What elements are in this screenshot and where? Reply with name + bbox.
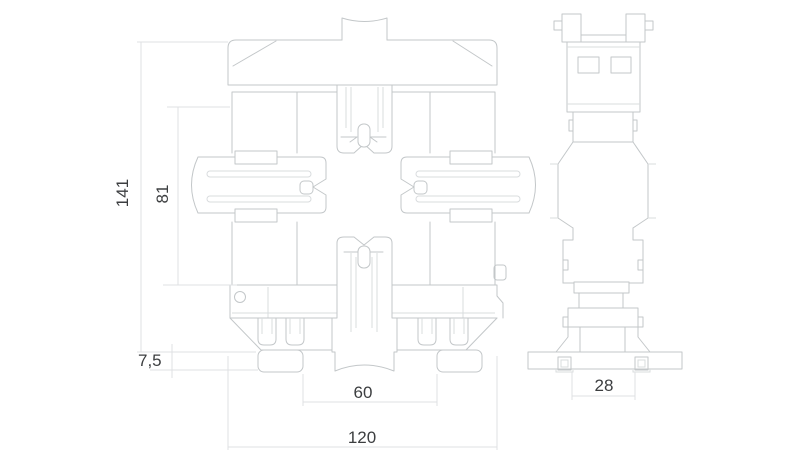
top-screw <box>358 124 370 147</box>
right-terminal-top <box>450 151 492 164</box>
dim-foot-spacing-label: 60 <box>354 383 373 402</box>
left-arm-clip <box>300 181 313 194</box>
rail-clamp <box>579 293 623 308</box>
cap-chamfer-right <box>453 41 492 66</box>
dim-upper-body-height-label: 81 <box>153 185 172 204</box>
bottom-screw <box>358 246 370 268</box>
dim-foot-spacing: 60 <box>303 374 437 406</box>
side-lower-body <box>563 228 643 283</box>
side-view <box>528 14 682 372</box>
rail-clamp-top <box>574 282 629 293</box>
left-terminal-arm <box>192 151 327 222</box>
left-foot <box>258 350 303 372</box>
right-arm-clip <box>414 181 427 194</box>
base-lug-left <box>558 357 571 370</box>
left-terminal-top <box>235 151 277 164</box>
side-window-right <box>611 57 631 73</box>
base-lug-right <box>635 357 648 370</box>
dim-overall-width-label: 120 <box>348 428 376 447</box>
side-latch <box>494 265 506 280</box>
right-terminal-arm <box>401 151 536 222</box>
left-terminal-bottom <box>235 209 277 222</box>
side-window-left <box>578 57 599 73</box>
side-ear-left <box>562 14 581 42</box>
rail-block <box>568 308 638 327</box>
mounting-hole <box>235 292 246 303</box>
side-neck <box>573 112 633 142</box>
side-upper-block <box>567 42 640 112</box>
dim-base-width-label: 28 <box>595 376 614 395</box>
right-terminal-bottom <box>450 209 492 222</box>
technical-drawing: 141 81 7,5 60 120 28 <box>0 0 800 450</box>
dim-foot-height: 7,5 <box>138 344 258 378</box>
side-base-neck <box>556 327 650 352</box>
front-view <box>192 18 536 372</box>
top-contact-channel <box>337 85 392 153</box>
dim-foot-height-label: 7,5 <box>138 351 162 370</box>
bottom-contact-channel <box>332 237 397 371</box>
top-tab <box>342 18 387 40</box>
housing-cap <box>228 40 497 85</box>
side-wide-section <box>558 142 648 228</box>
drawing-svg: 141 81 7,5 60 120 28 <box>0 0 800 450</box>
dim-base-width: 28 <box>572 372 635 400</box>
side-ear-right <box>626 14 645 42</box>
right-foot <box>437 350 482 372</box>
cap-chamfer-left <box>233 41 276 66</box>
dim-overall-height-label: 141 <box>113 179 132 207</box>
side-base-plate <box>528 352 682 369</box>
